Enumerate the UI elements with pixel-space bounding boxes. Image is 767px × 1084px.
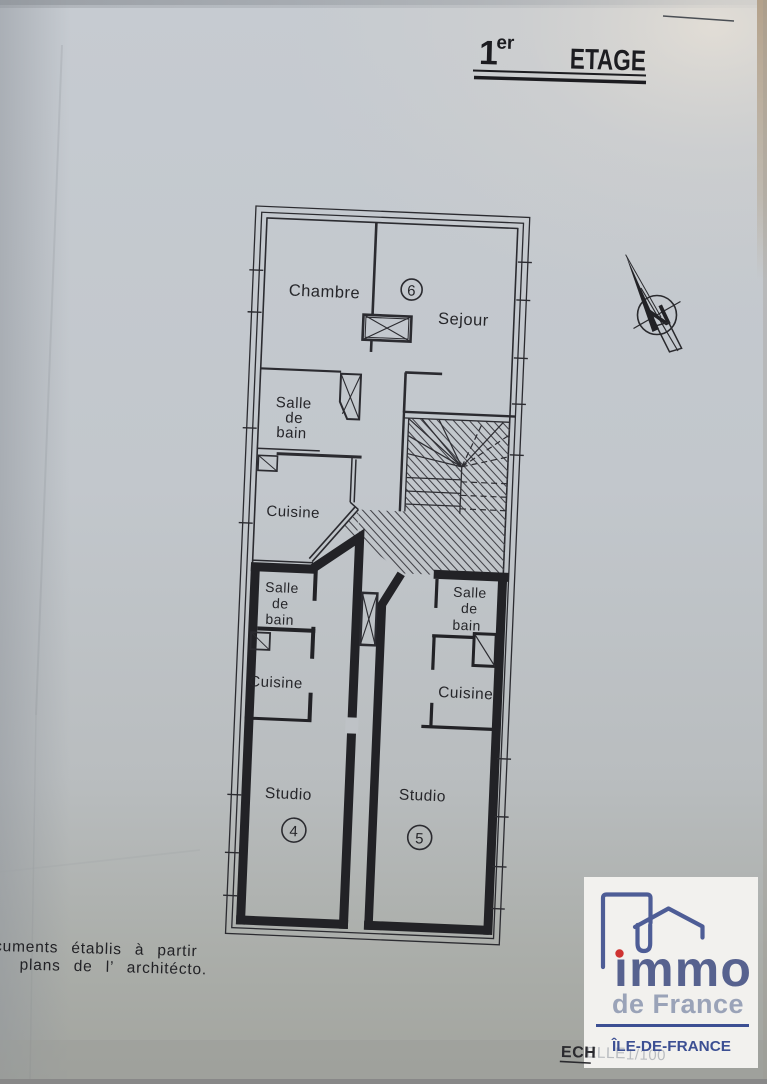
svg-text:Salle: Salle — [453, 584, 487, 601]
svg-text:Cuisine: Cuisine — [266, 503, 320, 522]
svg-text:de: de — [461, 600, 478, 617]
svg-text:bain: bain — [265, 611, 294, 628]
svg-text:de: de — [272, 595, 289, 612]
svg-text:er: er — [496, 32, 515, 54]
svg-text:Sejour: Sejour — [438, 310, 489, 330]
svg-text:Studio: Studio — [399, 787, 447, 806]
svg-text:6: 6 — [407, 282, 417, 299]
svg-text:4: 4 — [289, 823, 299, 840]
svg-text:de France: de France — [612, 989, 744, 1019]
svg-text:Salle: Salle — [265, 579, 299, 596]
svg-text:Studio: Studio — [265, 785, 313, 804]
svg-text:Chambre: Chambre — [288, 281, 360, 302]
svg-text:ETAGE: ETAGE — [569, 44, 646, 78]
svg-text:Cuisine: Cuisine — [249, 673, 303, 692]
svg-text:bain: bain — [452, 617, 481, 634]
svg-text:bain: bain — [276, 424, 307, 442]
svg-text:ECH: ECH — [561, 1044, 597, 1062]
svg-text:ÎLE-DE-FRANCE: ÎLE-DE-FRANCE — [611, 1037, 731, 1055]
svg-text:Cuisine: Cuisine — [438, 684, 494, 703]
svg-text:5: 5 — [415, 830, 425, 847]
